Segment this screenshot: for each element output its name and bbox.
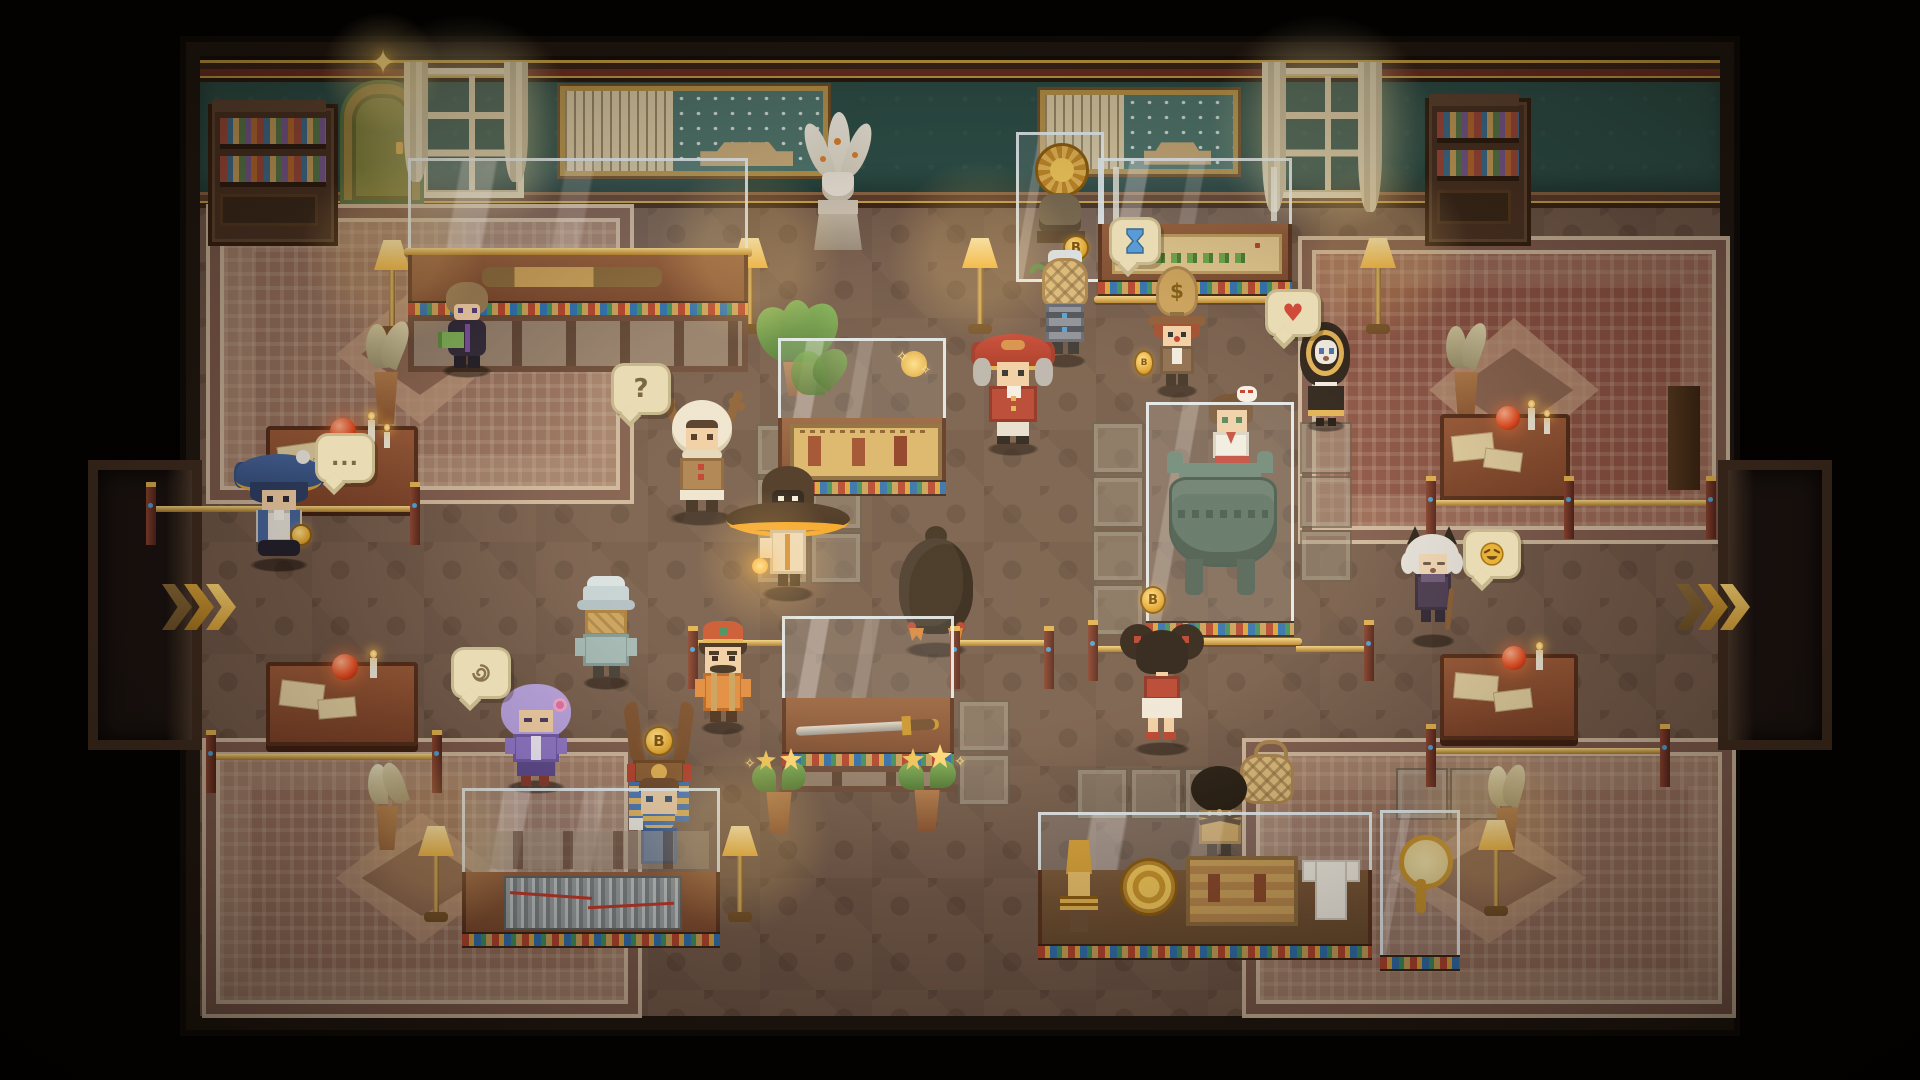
barrier-post <box>1564 476 1574 539</box>
gold-coin: B <box>1136 352 1152 374</box>
gold-plate <box>1120 858 1178 916</box>
chevron-icon <box>1676 584 1706 630</box>
barrier-post <box>1426 724 1436 787</box>
npc-scholar-green-book[interactable] <box>436 280 498 378</box>
swirl-scribble-icon <box>468 660 494 686</box>
question-bubble: ? <box>614 366 668 412</box>
straw-basket-pack <box>585 610 627 636</box>
white-plume-vase-statue[interactable] <box>800 112 876 252</box>
money-bag-hat: $ <box>1156 266 1198 316</box>
npc-purple-haired-girl[interactable] <box>495 678 577 794</box>
bronze-figurine <box>1039 193 1081 233</box>
hat-plume <box>296 450 310 464</box>
glass-top <box>408 158 748 255</box>
barrier-post <box>1088 620 1098 681</box>
floor-tile <box>1300 530 1352 582</box>
floor-lamp <box>960 238 1000 334</box>
case-bed <box>462 872 720 932</box>
study-table-bottom-right[interactable] <box>1440 654 1578 740</box>
book-row <box>1437 112 1519 143</box>
glass-top <box>462 788 720 877</box>
laugh-bubble <box>1466 532 1518 576</box>
heart-bubble: ♥ <box>1268 292 1318 334</box>
ellipsis-bubble: ... <box>318 436 372 480</box>
npc-blue-tricorn-captain[interactable] <box>234 452 324 572</box>
laughing-face-icon <box>1479 541 1505 567</box>
barrier-rail <box>1430 748 1670 754</box>
bookshelf-right[interactable] <box>1425 98 1531 246</box>
door-handle-icon <box>396 142 403 154</box>
swirl-bubble <box>454 650 508 696</box>
green-door[interactable] <box>352 94 412 200</box>
glass-top <box>1098 158 1292 229</box>
woven-basket-pack <box>1042 258 1088 306</box>
flower-pot-star-flowers: ✧ <box>750 748 808 836</box>
bronze-sword <box>796 712 947 742</box>
floor-lamp <box>416 826 456 922</box>
display-case-bamboo-slips[interactable] <box>462 788 720 950</box>
barrier-post <box>410 482 420 545</box>
woven-tapestry <box>1186 856 1298 926</box>
npc-witch-hat-wanderer[interactable] <box>726 466 850 602</box>
nefertiti-bust <box>1052 840 1106 940</box>
display-case-mirror[interactable] <box>1380 810 1460 968</box>
potted-plant <box>364 762 410 854</box>
npc-red-tricorn-noble[interactable] <box>971 334 1055 456</box>
bronze-ding-vessel <box>1163 451 1277 611</box>
floor-tile <box>1092 422 1144 474</box>
flower-pot-star-flowers: ✧ <box>896 744 958 834</box>
floor-lamp <box>1476 820 1516 916</box>
gold-rail <box>404 248 752 255</box>
game-screen: ✦ <box>0 0 1920 1080</box>
mosaic-trim <box>462 932 720 948</box>
floor-tile <box>1300 476 1352 528</box>
bookshelf-left[interactable] <box>208 104 338 246</box>
linen-garment <box>1300 852 1358 922</box>
barrier-post <box>146 482 156 545</box>
mosaic-trim <box>1380 955 1460 971</box>
exit-arrows-right[interactable] <box>1676 584 1760 630</box>
npc-bun-haired-girl[interactable]: B <box>1118 594 1206 758</box>
barrier-post <box>432 730 442 793</box>
fox-mask <box>1237 386 1257 402</box>
floor-tile <box>1092 530 1144 582</box>
floor-lamp <box>1358 238 1398 334</box>
display-case-egyptian[interactable] <box>1038 812 1372 968</box>
chevron-icon <box>162 584 192 630</box>
barrier-post <box>1660 724 1670 787</box>
book-row <box>220 156 326 187</box>
floor-lamp <box>720 826 760 922</box>
glowing-lantern <box>752 558 768 574</box>
exit-arrows-left[interactable] <box>162 584 246 630</box>
book-row <box>220 118 326 149</box>
mosaic-trim <box>1038 944 1372 960</box>
floor-tile <box>958 700 1010 752</box>
hourglass-bubble <box>1112 220 1158 262</box>
glass-top <box>782 616 954 703</box>
study-table-bottom-left[interactable] <box>266 662 418 746</box>
study-table-top-right[interactable] <box>1440 414 1570 500</box>
gold-hand-mirror <box>1399 835 1453 889</box>
crystal-orb <box>1496 406 1520 430</box>
npc-bucket-hat-traveler[interactable] <box>573 576 639 690</box>
mirror-handle <box>1416 879 1426 913</box>
barrier-rail <box>960 640 1046 646</box>
npc-hooded-nun[interactable] <box>1296 322 1354 432</box>
bronze-telescope <box>482 267 662 287</box>
barrier-rail <box>210 754 440 760</box>
floor-tile <box>1092 476 1144 528</box>
barrier-post <box>1706 476 1716 539</box>
flower-hairclip <box>553 698 567 712</box>
npc-cat-eared-elder[interactable] <box>1401 526 1463 648</box>
gold-coin: B <box>1142 588 1164 612</box>
barrier-post <box>1044 626 1054 689</box>
barrier-post <box>206 730 216 793</box>
book-row <box>1437 150 1519 181</box>
bamboo-slip-scroll <box>504 876 682 930</box>
barrier-post <box>1364 620 1374 681</box>
hourglass-icon <box>1125 228 1145 254</box>
curtain <box>1358 62 1382 212</box>
green-book <box>438 332 464 348</box>
star-lamp: ✦ <box>366 44 400 88</box>
gold-coin: B <box>646 728 672 754</box>
gold-sun-disc <box>1035 143 1089 197</box>
crystal-orb <box>1502 646 1526 670</box>
crystal-orb <box>332 654 358 680</box>
glass-top: ✧ ✧ <box>778 338 946 423</box>
barrier-rail <box>1296 646 1370 652</box>
npc-money-bag-trader[interactable]: $ <box>1148 266 1206 400</box>
wood-pillar <box>1668 386 1700 490</box>
